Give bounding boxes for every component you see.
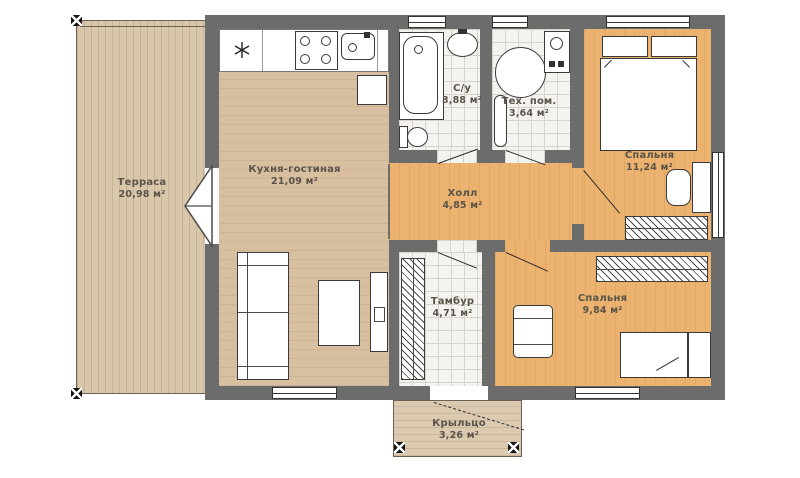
room-name: Тех. пом. — [487, 95, 571, 108]
washer-knob-icon — [549, 61, 555, 67]
doorway-entrance — [430, 386, 488, 400]
doorway-bedroom1 — [572, 168, 584, 224]
room-name: Спальня — [545, 292, 660, 305]
basin-faucet-icon — [458, 29, 467, 34]
terrace-post — [71, 15, 82, 26]
room-label-tech: Тех. пом. 3,64 м² — [487, 95, 571, 120]
burner-icon — [300, 54, 310, 64]
pillow — [651, 36, 697, 57]
room-name: С/у — [434, 82, 490, 95]
room-area: 11,24 м² — [592, 162, 707, 174]
room-label-hall: Холл 4,85 м² — [405, 187, 520, 212]
kitchen-sink — [341, 33, 375, 60]
room-area: 4,71 м² — [410, 308, 495, 320]
porch-post — [394, 442, 405, 453]
room-name: Спальня — [592, 149, 707, 162]
room-area: 20,98 м² — [82, 189, 202, 201]
washer-drum-icon — [550, 37, 563, 50]
room-label-bathroom: С/у 3,88 м² — [434, 82, 490, 107]
doorway-vestibule — [437, 240, 477, 252]
faucet-icon — [364, 32, 370, 38]
wardrobe — [625, 216, 708, 240]
snowflake-symbol — [233, 41, 251, 59]
wash-basin — [447, 32, 478, 57]
window-bedroom1-top — [606, 16, 690, 28]
counter-divider — [377, 30, 378, 71]
washing-machine — [544, 31, 570, 73]
terrace-edge-line — [80, 26, 208, 27]
room-area: 3,88 м² — [434, 95, 490, 107]
porch-post — [508, 442, 519, 453]
window-bedroom1-right — [712, 152, 724, 238]
window-bedroom2-bottom — [575, 387, 640, 399]
tv-stand — [370, 272, 388, 352]
room-label-porch: Крыльцо 3,26 м² — [400, 417, 518, 442]
washer-knob-icon — [558, 61, 564, 67]
room-area: 9,84 м² — [545, 305, 660, 317]
room-label-bedroom2: Спальня 9,84 м² — [545, 292, 660, 317]
toilet-bowl — [407, 127, 428, 147]
room-label-kitchen-living: Кухня-гостиная 21,09 м² — [232, 163, 357, 188]
room-area: 4,85 м² — [405, 200, 520, 212]
fridge — [357, 75, 387, 105]
desk-chair — [666, 169, 691, 206]
drain-icon — [414, 45, 423, 54]
room-label-vestibule: Тамбур 4,71 м² — [410, 295, 495, 320]
burner-icon — [321, 36, 331, 46]
room-name: Крыльцо — [400, 417, 518, 430]
burner-icon — [300, 36, 310, 46]
burner-icon — [321, 54, 331, 64]
wardrobe — [596, 256, 708, 282]
stove — [295, 31, 338, 70]
bed-pillow — [688, 332, 711, 378]
room-label-terrace: Терраса 20,98 м² — [82, 176, 202, 201]
single-bed — [620, 332, 688, 378]
counter-divider — [262, 30, 263, 71]
window-living-bottom — [272, 387, 337, 399]
window-tech — [492, 16, 528, 28]
doorway-bedroom2 — [505, 240, 550, 252]
room-name: Холл — [405, 187, 520, 200]
boiler — [495, 47, 546, 98]
living-hall-threshold — [388, 164, 390, 239]
room-label-bedroom1: Спальня 11,24 м² — [592, 149, 707, 174]
room-name: Тамбур — [410, 295, 495, 308]
coffee-table — [318, 280, 360, 346]
terrace-post — [71, 388, 82, 399]
floor-plan-canvas: Терраса 20,98 м² Кухня-гостиная 21,09 м²… — [0, 0, 800, 478]
window-bathroom — [408, 16, 446, 28]
room-area: 21,09 м² — [232, 176, 357, 188]
room-name: Кухня-гостиная — [232, 163, 357, 176]
room-area: 3,64 м² — [487, 108, 571, 120]
sofa — [237, 252, 289, 380]
double-bed — [600, 58, 697, 151]
pillow — [602, 36, 648, 57]
room-name: Терраса — [82, 176, 202, 189]
drain-icon — [348, 43, 357, 52]
room-area: 3,26 м² — [400, 430, 518, 442]
